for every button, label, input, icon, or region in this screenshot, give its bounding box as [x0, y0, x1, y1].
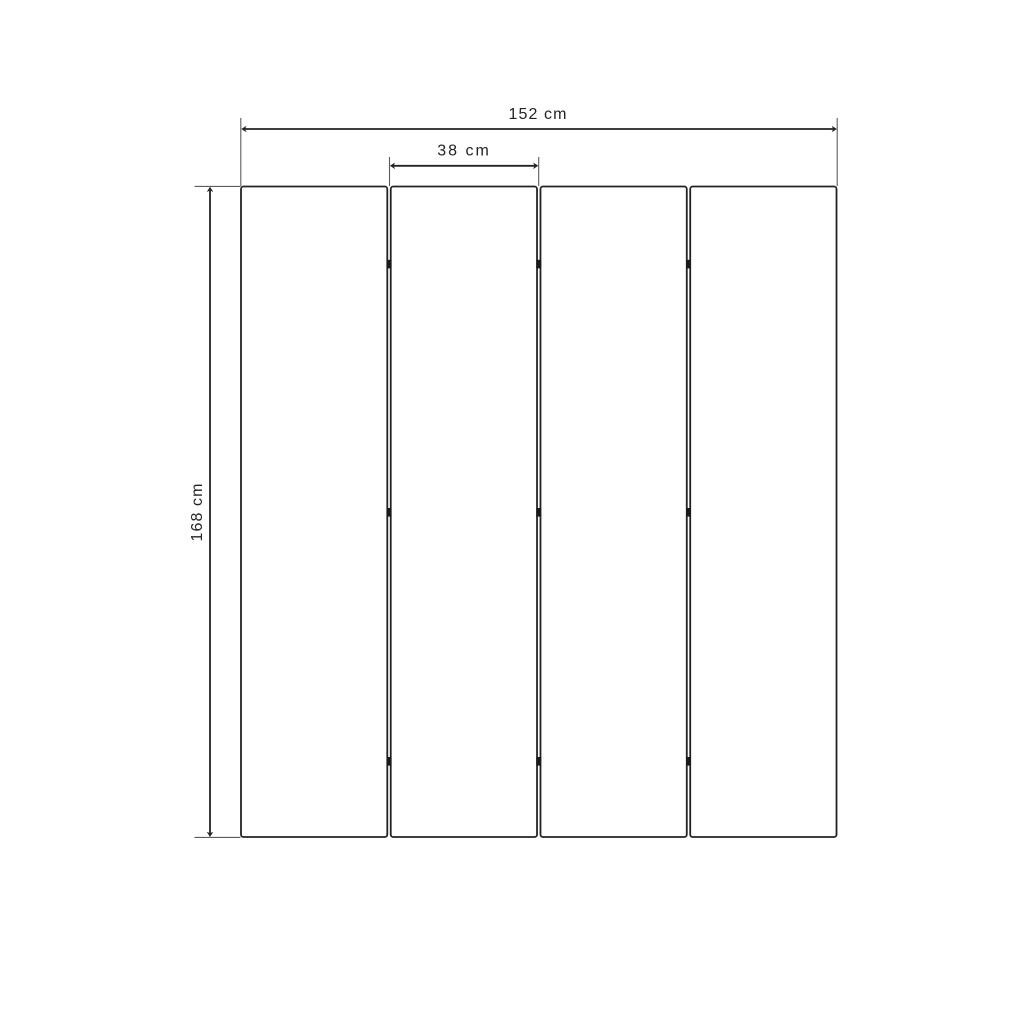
svg-text:168 cm: 168 cm — [189, 482, 206, 541]
svg-text:38 cm: 38 cm — [437, 143, 491, 160]
svg-text:152 cm: 152 cm — [508, 106, 567, 123]
